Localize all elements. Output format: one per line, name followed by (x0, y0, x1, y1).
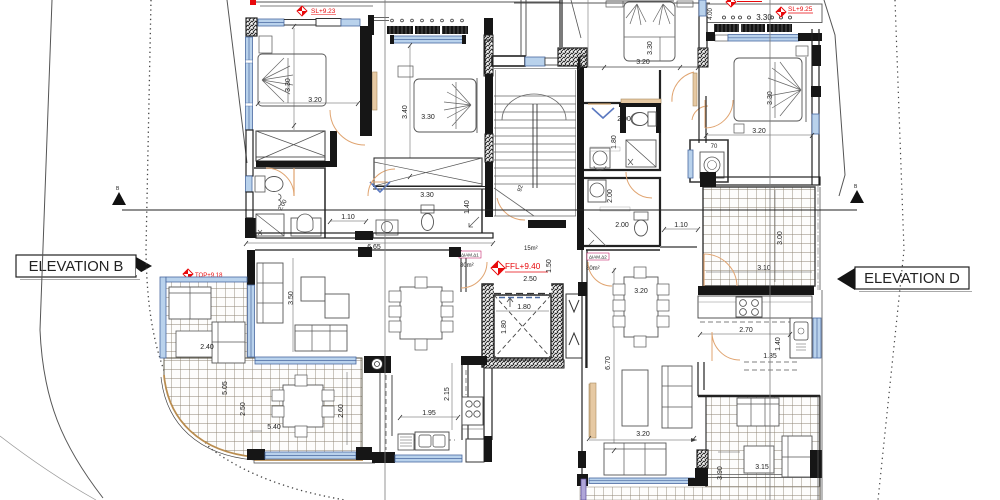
svg-text:3.00: 3.00 (777, 231, 784, 245)
svg-text:1.80: 1.80 (517, 304, 531, 311)
svg-text:1.50: 1.50 (546, 259, 553, 273)
svg-text:3.50: 3.50 (288, 291, 295, 305)
svg-text:3.40: 3.40 (402, 105, 409, 119)
svg-text:1.80: 1.80 (501, 320, 508, 334)
svg-text:80m²: 80m² (460, 263, 474, 269)
svg-text:2.40: 2.40 (200, 344, 214, 351)
svg-text:3.30: 3.30 (421, 114, 435, 121)
svg-text:1.80: 1.80 (611, 135, 618, 149)
svg-text:5.40: 5.40 (267, 424, 281, 431)
svg-text:ΔΙΑΜ.Δ1: ΔΙΑΜ.Δ1 (461, 253, 479, 258)
svg-text:4.00: 4.00 (708, 8, 714, 20)
svg-text:1.40: 1.40 (775, 337, 782, 351)
svg-text:3.30: 3.30 (647, 41, 654, 55)
svg-text:2.70: 2.70 (739, 327, 753, 334)
svg-text:1.95: 1.95 (422, 410, 436, 417)
svg-text:2.50: 2.50 (240, 402, 247, 416)
svg-text:1.40: 1.40 (464, 200, 471, 214)
svg-text:2.00: 2.00 (615, 222, 629, 229)
svg-text:FFL+9.40: FFL+9.40 (505, 262, 541, 271)
svg-text:3.20: 3.20 (752, 128, 766, 135)
svg-text:15m²: 15m² (524, 246, 538, 252)
svg-text:3.20: 3.20 (636, 431, 650, 438)
svg-text:3.20: 3.20 (636, 59, 650, 66)
svg-text:3.90: 3.90 (717, 466, 724, 480)
svg-text:3.30: 3.30 (420, 192, 434, 199)
svg-text:SL+9.23: SL+9.23 (311, 8, 336, 15)
svg-text:1.10: 1.10 (674, 222, 688, 229)
svg-text:1.10: 1.10 (341, 214, 355, 221)
svg-text:3.20: 3.20 (634, 288, 648, 295)
svg-text:2.50: 2.50 (523, 276, 537, 283)
svg-text:2.60: 2.60 (338, 404, 345, 418)
svg-text:3.15: 3.15 (755, 464, 769, 471)
svg-text:3.10: 3.10 (757, 265, 771, 272)
svg-text:3.30: 3.30 (767, 91, 774, 105)
svg-text:SL+9.25: SL+9.25 (788, 6, 813, 13)
svg-text:2.00: 2.00 (607, 189, 614, 203)
svg-text:5.05: 5.05 (222, 381, 229, 395)
svg-text:2.15: 2.15 (444, 387, 451, 401)
svg-text:ELEVATION D: ELEVATION D (864, 271, 960, 287)
svg-text:3.30: 3.30 (285, 78, 292, 92)
svg-text:ΔΙΑΜ.Δ2: ΔΙΑΜ.Δ2 (589, 255, 607, 260)
svg-text:6.70: 6.70 (605, 356, 612, 370)
svg-text:70: 70 (711, 144, 718, 150)
